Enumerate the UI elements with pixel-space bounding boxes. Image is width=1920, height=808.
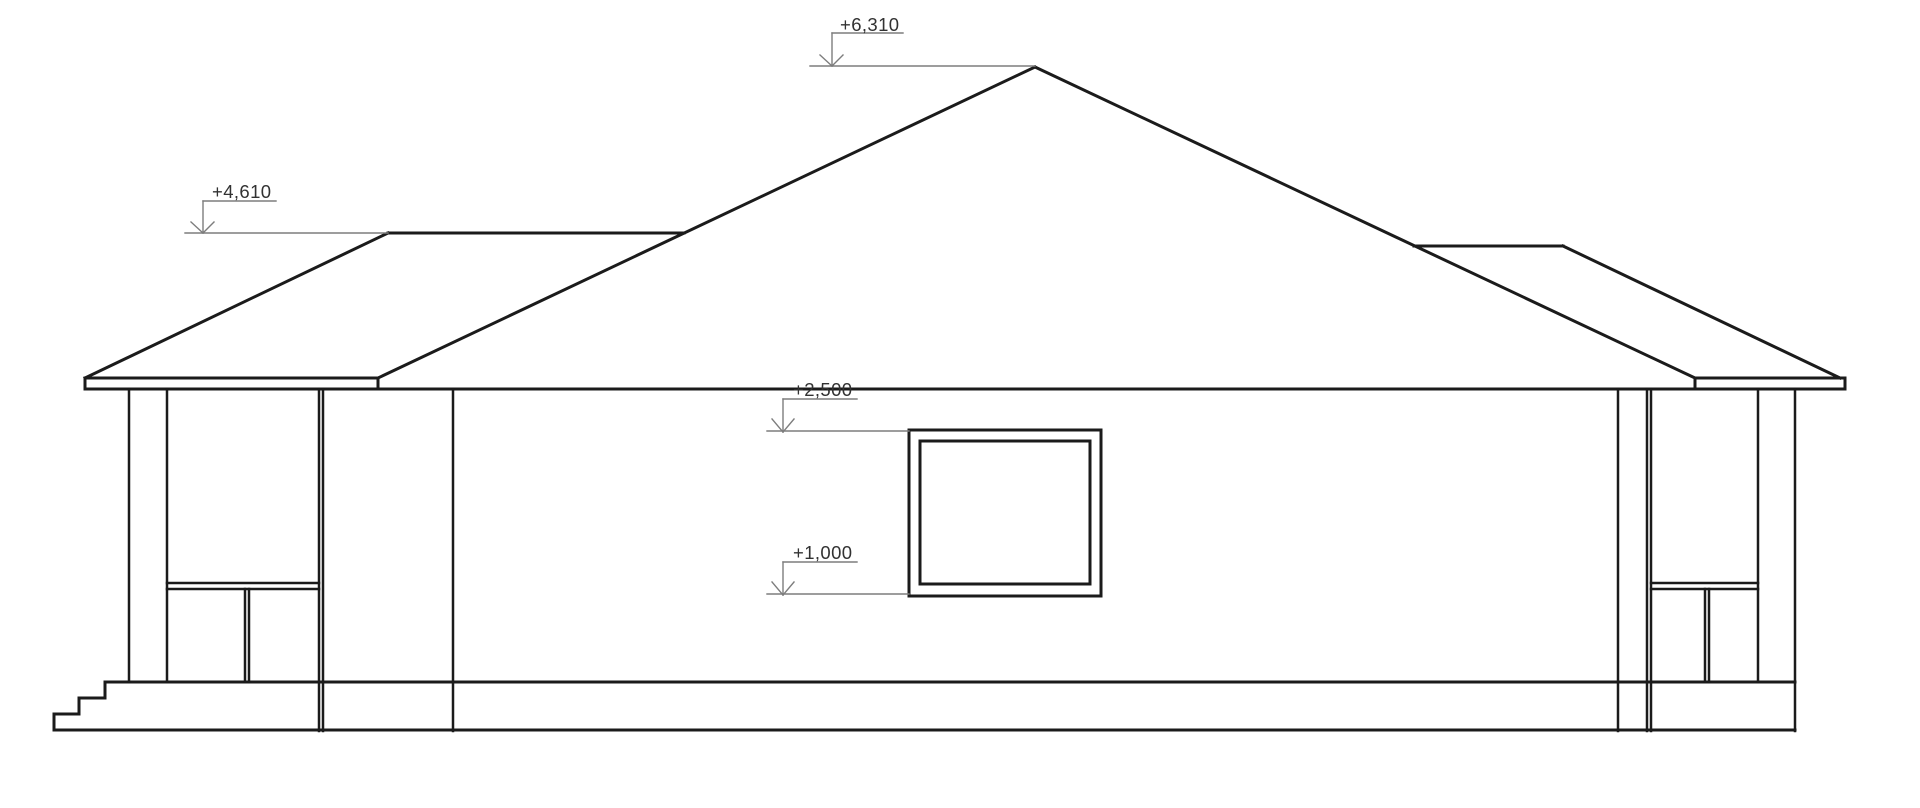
right-porch-columns — [1618, 389, 1795, 731]
elevation-marker-+4,610 — [185, 201, 388, 233]
elevation-marker-+1,000 — [767, 562, 909, 595]
window-outer-frame — [909, 430, 1101, 596]
elevation-labels: +6,310 +4,610 +2,500 +1,000 — [212, 14, 900, 563]
elevation-marker-+6,310 — [810, 33, 1035, 66]
entry-steps — [54, 682, 105, 730]
elevation-label-window-head: +2,500 — [793, 379, 853, 400]
building-lines — [54, 67, 1845, 731]
main-roof-slopes — [378, 67, 1695, 378]
elevation-drawing-page: +6,310 +4,610 +2,500 +1,000 — [0, 0, 1920, 808]
left-porch-railing — [167, 583, 319, 682]
window-inner-frame — [920, 441, 1090, 584]
left-wing-roof — [85, 233, 684, 378]
elevation-marker-+2,500 — [767, 399, 909, 432]
left-porch-columns — [129, 389, 453, 731]
right-wing-roof — [1414, 246, 1840, 378]
elevation-label-ridge: +6,310 — [840, 14, 900, 35]
right-porch-railing — [1651, 583, 1758, 682]
left-fascia-board — [85, 378, 378, 389]
elevation-label-window-sill: +1,000 — [793, 542, 853, 563]
right-fascia-board — [1695, 378, 1845, 389]
elevation-drawing-svg: +6,310 +4,610 +2,500 +1,000 — [0, 0, 1920, 808]
elevation-label-left-wing-ridge: +4,610 — [212, 181, 272, 202]
